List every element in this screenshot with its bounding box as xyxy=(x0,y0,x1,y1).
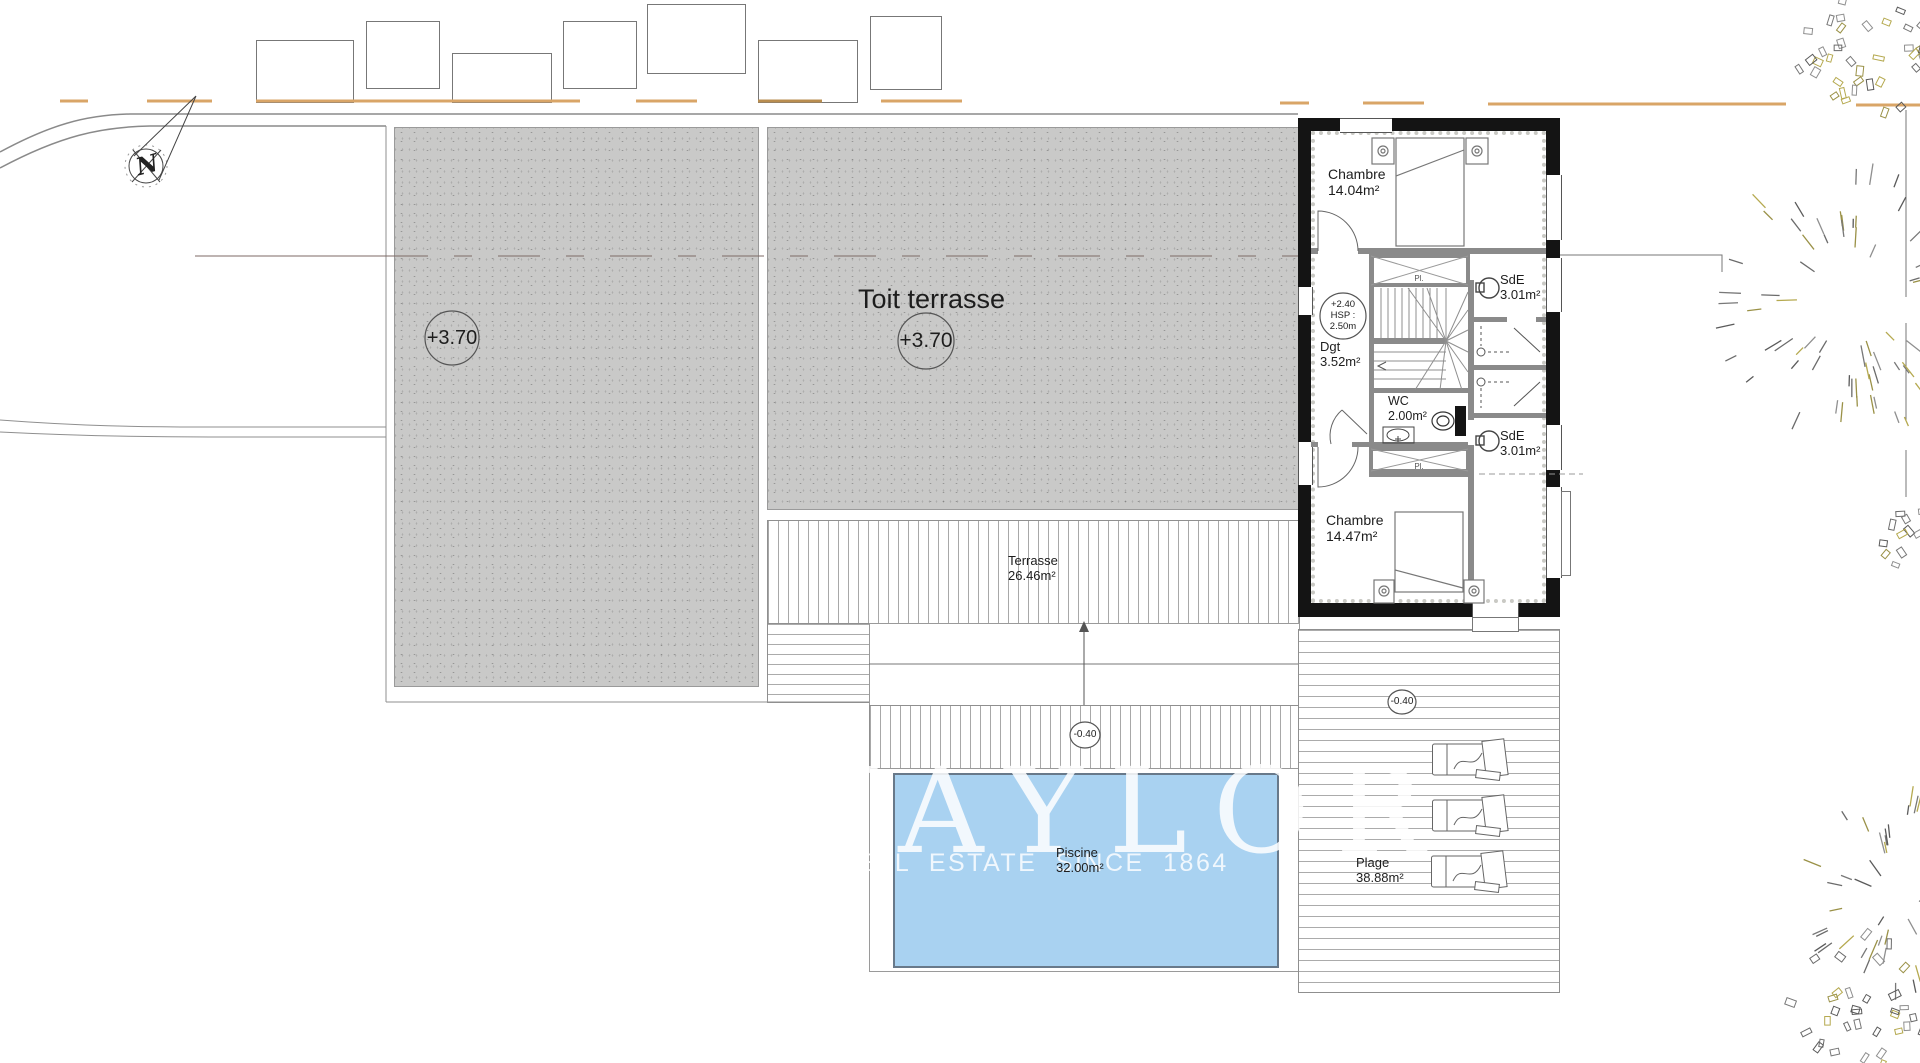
label-terrasse: Terrasse26.46m² xyxy=(1008,553,1058,583)
lounger-icon xyxy=(1433,739,1509,781)
label-sde-bottom: SdE3.01m² xyxy=(1500,428,1540,458)
label-stair-note: +2.40HSP :2.50m xyxy=(1313,300,1373,333)
roof-level-left: +3.70 xyxy=(412,327,492,350)
road-dashes xyxy=(60,101,1920,105)
level-circles xyxy=(425,293,1416,748)
landing-lines xyxy=(869,630,1298,705)
label-piscine: Piscine32.00m² xyxy=(1056,845,1104,875)
label-wc: WC2.00m² xyxy=(1388,394,1427,423)
label-sde-top: SdE3.01m² xyxy=(1500,272,1540,302)
label-chambre-top: Chambre14.04m² xyxy=(1328,166,1386,198)
roof-level-right: +3.70 xyxy=(886,329,966,353)
plot-boundary xyxy=(0,110,1906,702)
vegetation xyxy=(1716,0,1920,1063)
lounger-icon xyxy=(1433,795,1509,837)
toilet-icon xyxy=(1432,406,1466,436)
lounger-icon xyxy=(1432,851,1508,893)
label-plage: Plage38.88m² xyxy=(1356,855,1404,885)
level-plage-deck: -0.40 xyxy=(1377,696,1427,708)
slope-arrow xyxy=(1079,621,1089,632)
road-lines xyxy=(0,114,1298,168)
sink-icon-top xyxy=(1476,278,1499,298)
floor-plan: TAYLOR REAL ESTATE SINCE 1864 xyxy=(0,0,1920,1063)
linework-layer xyxy=(0,0,1920,1063)
wc-sink-icon xyxy=(1383,427,1414,443)
label-closet-top: Pl. xyxy=(1406,274,1432,283)
level-pool-deck: -0.40 xyxy=(1060,729,1110,741)
roof-title: Toit terrasse xyxy=(858,284,1005,315)
label-dgt: Dgt3.52m² xyxy=(1320,339,1360,369)
label-closet-bottom: Pl. xyxy=(1406,462,1432,471)
label-chambre-bottom: Chambre14.47m² xyxy=(1326,512,1384,544)
bed-icon-top xyxy=(1372,138,1488,246)
bed-icon-bottom xyxy=(1374,512,1484,603)
shower-icon-top xyxy=(1477,326,1540,356)
shower-icon-bottom xyxy=(1477,378,1540,408)
sink-icon-bottom xyxy=(1476,431,1499,451)
